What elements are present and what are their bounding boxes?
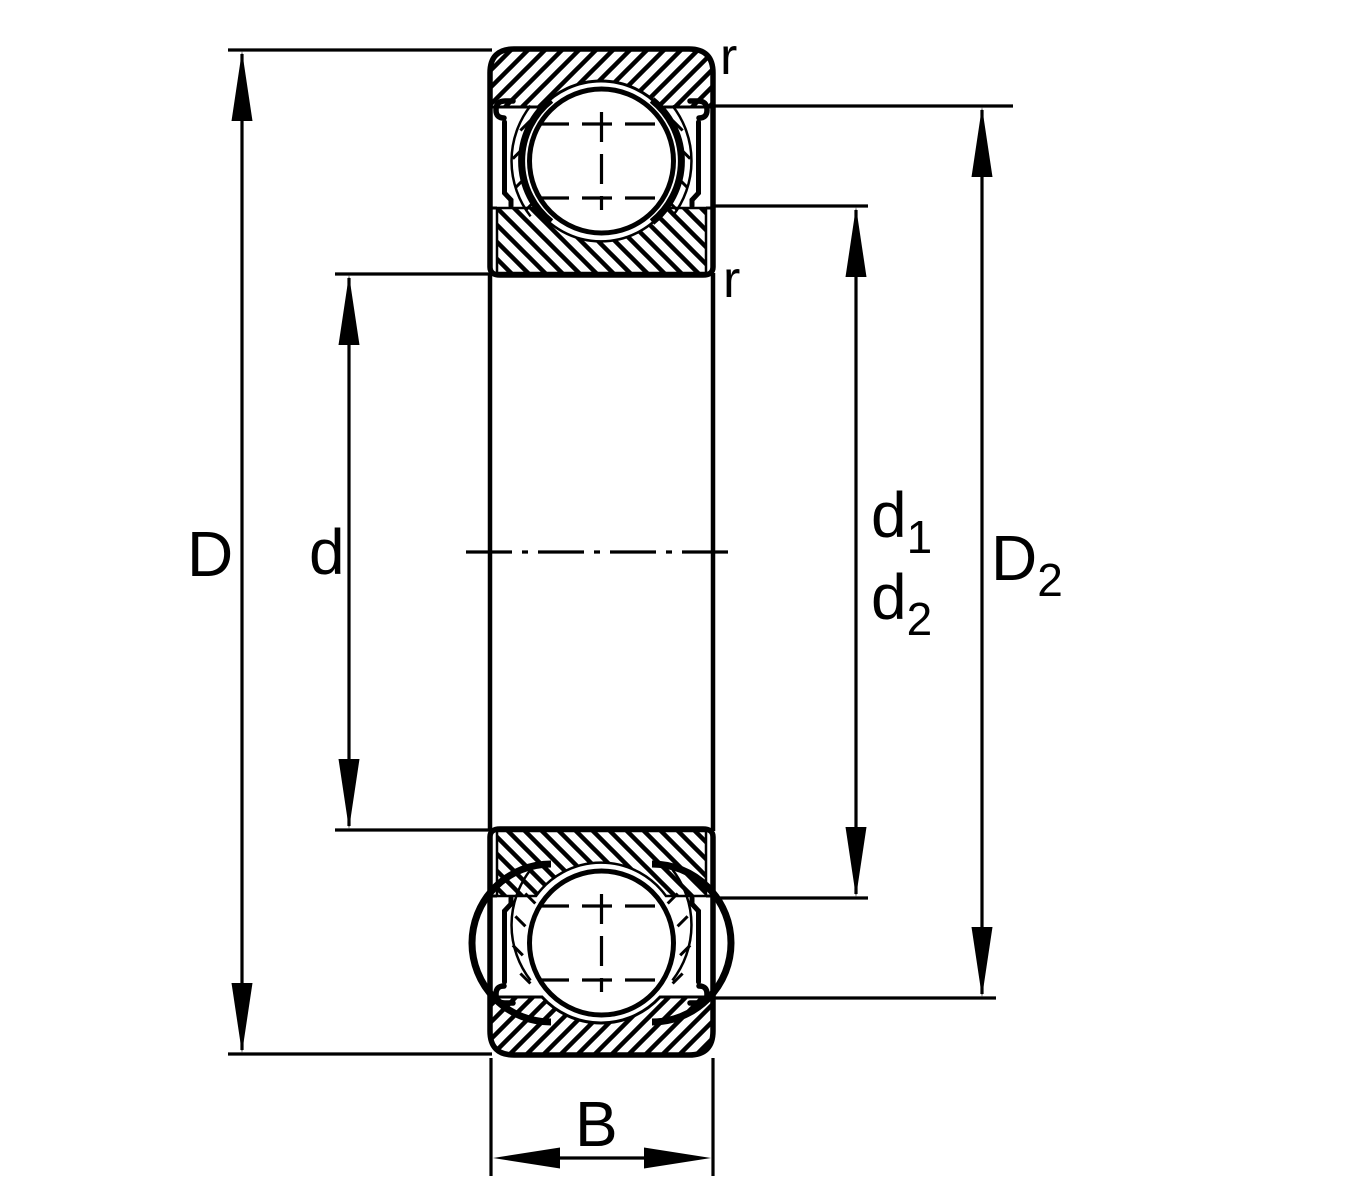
dimension-d1-d2	[713, 206, 868, 898]
label-D2: D2	[991, 522, 1063, 606]
top-half-section	[490, 49, 713, 275]
shield-right-bottom	[690, 898, 707, 1003]
label-d1: d1	[871, 479, 932, 563]
arrowhead-d1d2-down	[846, 827, 867, 897]
bearing-diagram-svg: D d d1 d2 D2 B r r	[0, 0, 1350, 1200]
label-d2: d2	[871, 561, 932, 645]
arrowhead-d1d2-up	[846, 207, 867, 277]
bearing-dimension-drawing: D d d1 d2 D2 B r r	[0, 0, 1350, 1200]
label-radius-inner-r: r	[723, 251, 740, 309]
dimension-D2	[713, 106, 1013, 998]
shield-left-bottom	[496, 898, 513, 1003]
arrowhead-D2-up	[972, 107, 993, 177]
arrowhead-d-up	[339, 275, 360, 345]
label-width-B: B	[575, 1088, 618, 1160]
arrowhead-d-down	[339, 759, 360, 829]
shield-left-top	[496, 101, 513, 206]
arrowhead-D2-down	[972, 927, 993, 997]
arrowhead-B-right	[644, 1148, 711, 1169]
label-outer-diameter-D: D	[187, 518, 233, 590]
arrowhead-D-up	[232, 51, 253, 121]
bottom-half-section	[472, 829, 731, 1055]
arrowhead-B-left	[493, 1148, 560, 1169]
shield-right-top	[690, 101, 707, 206]
label-radius-outer-r: r	[720, 28, 737, 86]
arrowhead-D-down	[232, 983, 253, 1053]
label-bore-diameter-d: d	[309, 516, 345, 588]
dimension-D	[228, 50, 492, 1054]
